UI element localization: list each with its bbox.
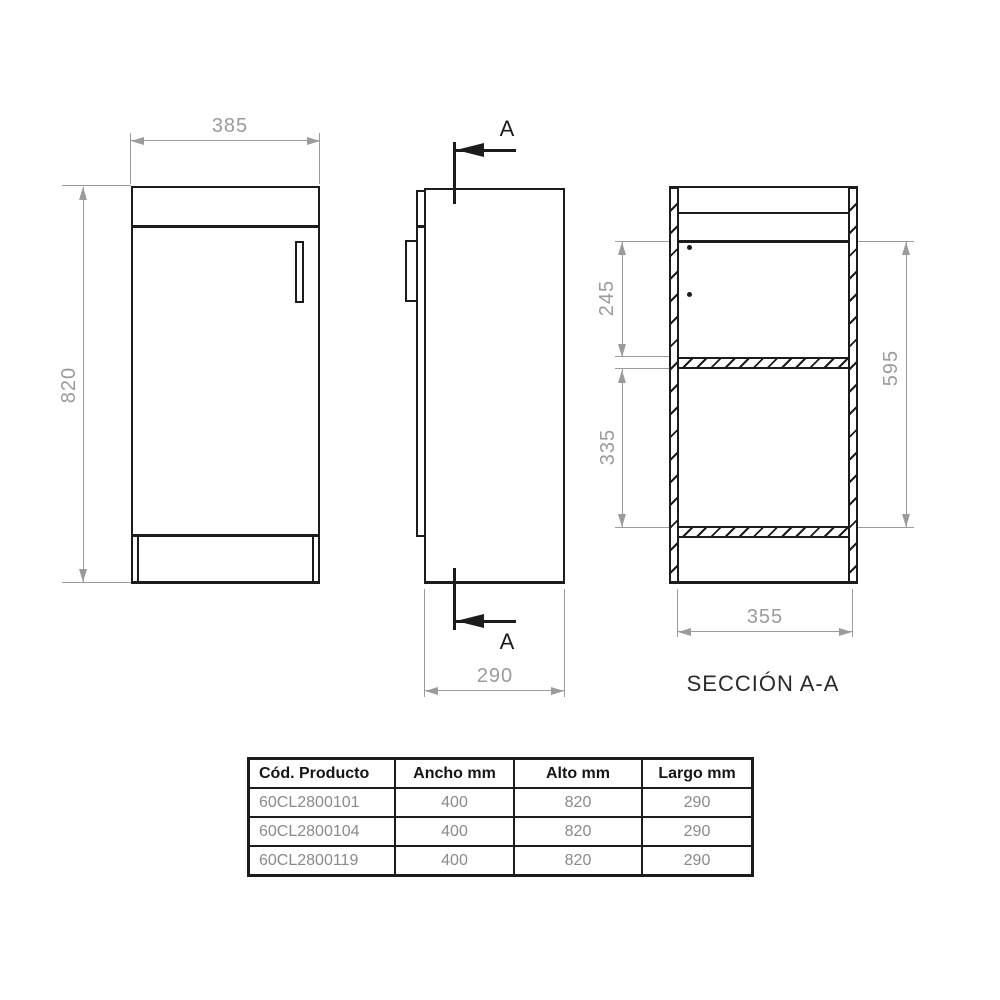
section-top-rail-line [679, 212, 848, 214]
height-dim-label: 820 [58, 355, 80, 415]
col-header-codigo: Cód. Producto [249, 759, 396, 789]
dim595-line [906, 242, 907, 527]
side-door-seam-line [416, 225, 426, 228]
cell-largo: 290 [642, 788, 753, 817]
depth-dim-line [424, 690, 565, 691]
cell-alto: 820 [514, 846, 642, 876]
cut-label-top: A [491, 117, 523, 141]
front-view-outline [131, 186, 320, 584]
table-row: 60CL2800101 400 820 290 [249, 788, 753, 817]
width-dim-line [131, 140, 320, 141]
section-right-wall [848, 187, 858, 584]
cut-arrow-bottom [456, 614, 484, 628]
dim595-extension-bottom [858, 527, 914, 528]
dim355-arrow-right [839, 628, 852, 636]
depth-dim-extension-right [564, 589, 565, 697]
depth-dim-arrow-left [425, 687, 438, 695]
col-header-ancho: Ancho mm [395, 759, 514, 789]
dim245-line [622, 242, 623, 357]
cut-arrow-top [456, 143, 484, 157]
front-plinth-right-line [312, 537, 314, 583]
cell-alto: 820 [514, 817, 642, 846]
height-dim-arrow-down [79, 569, 87, 582]
dim335-arrow-up [618, 370, 626, 383]
height-dim-arrow-up [79, 187, 87, 200]
col-header-largo: Largo mm [642, 759, 753, 789]
shelf-pin-hole-bottom [687, 292, 692, 297]
dim245-label: 245 [596, 268, 618, 328]
side-view-outline [424, 188, 565, 584]
dim595-arrow-down [902, 514, 910, 527]
cell-alto: 820 [514, 788, 642, 817]
dim595-arrow-up [902, 242, 910, 255]
height-dim-extension-top [62, 185, 131, 186]
dim335-extension-bottom [615, 527, 669, 528]
product-spec-table: Cód. Producto Ancho mm Alto mm Largo mm … [247, 757, 754, 877]
table-row: 60CL2800104 400 820 290 [249, 817, 753, 846]
dim245-arrow-up [618, 242, 626, 255]
dim335-label: 335 [597, 417, 619, 477]
col-header-alto: Alto mm [514, 759, 642, 789]
dim355-line [677, 631, 853, 632]
shelf-pin-hole-top [687, 245, 692, 250]
cell-product-code: 60CL2800101 [249, 788, 396, 817]
side-handle [405, 240, 418, 302]
dim335-arrow-down [618, 514, 626, 527]
dim335-line [622, 369, 623, 527]
section-middle-shelf [679, 357, 848, 369]
cell-product-code: 60CL2800104 [249, 817, 396, 846]
cut-label-bottom: A [491, 630, 523, 654]
cell-largo: 290 [642, 817, 753, 846]
depth-dim-arrow-right [551, 687, 564, 695]
depth-dim-label: 290 [459, 665, 531, 687]
height-dim-line [83, 187, 84, 582]
dim355-arrow-left [678, 628, 691, 636]
dim335-extension-top [615, 368, 669, 369]
section-top-line [669, 186, 858, 188]
front-top-panel-line [131, 225, 320, 228]
dim355-label: 355 [729, 606, 801, 628]
depth-dim-extension-left [424, 589, 425, 697]
dim245-arrow-down [618, 344, 626, 357]
dim595-label: 595 [880, 338, 902, 398]
section-bottom-line [669, 581, 858, 584]
cell-largo: 290 [642, 846, 753, 876]
front-plinth-left-line [137, 537, 139, 583]
cell-ancho: 400 [395, 817, 514, 846]
section-counter-line [679, 240, 848, 243]
front-door-handle [295, 241, 304, 303]
width-dim-arrow-right [307, 137, 320, 145]
section-title: SECCIÓN A-A [658, 672, 868, 696]
section-left-wall [669, 187, 679, 584]
height-dim-extension-bottom [62, 582, 131, 583]
cell-ancho: 400 [395, 788, 514, 817]
cabinet-technical-drawing: 385 820 A A 290 [0, 0, 1000, 1000]
cell-product-code: 60CL2800119 [249, 846, 396, 876]
width-dim-arrow-left [131, 137, 144, 145]
dim355-extension-right [852, 589, 853, 637]
section-bottom-shelf [679, 526, 848, 538]
table-header-row: Cód. Producto Ancho mm Alto mm Largo mm [249, 759, 753, 789]
table-row: 60CL2800119 400 820 290 [249, 846, 753, 876]
front-door-bottom-line [131, 534, 320, 537]
cell-ancho: 400 [395, 846, 514, 876]
width-dim-label: 385 [195, 115, 265, 137]
